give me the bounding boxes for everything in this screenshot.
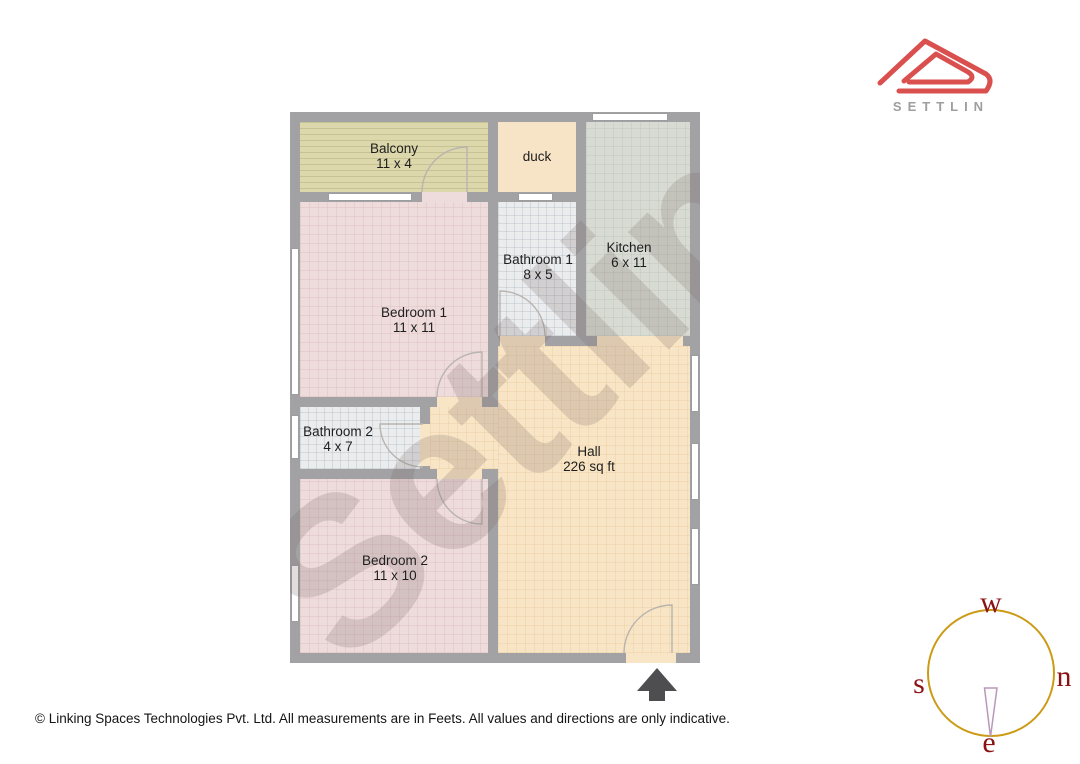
- room-dims: 226 sq ft: [509, 459, 669, 474]
- room-name: Balcony: [314, 141, 474, 156]
- room-label-hall: Hall 226 sq ft: [509, 444, 669, 474]
- room-label-bedroom1: Bedroom 1 11 x 11: [334, 305, 494, 335]
- room-label-balcony: Balcony 11 x 4: [314, 141, 474, 171]
- door-arc-bathroom1: [500, 291, 545, 336]
- door-arc-entrance: [624, 605, 672, 653]
- room-name: Bedroom 1: [334, 305, 494, 320]
- compass-label-w: w: [974, 588, 1008, 618]
- room-name: Bathroom 1: [458, 252, 618, 267]
- floorplan-page: { "logo": { "brand": "SETTLIN" }, "water…: [0, 0, 1080, 764]
- compass-label-e: e: [972, 728, 1006, 758]
- footer-copyright: © Linking Spaces Technologies Pvt. Ltd. …: [35, 711, 730, 726]
- room-dims: 11 x 4: [314, 156, 474, 171]
- compass-label-n: n: [1047, 662, 1080, 692]
- door-arc-bedroom2: [437, 479, 482, 524]
- room-name: Bathroom 2: [258, 424, 418, 439]
- room-name: Hall: [509, 444, 669, 459]
- room-dims: 8 x 5: [458, 267, 618, 282]
- room-label-bathroom1: Bathroom 1 8 x 5: [458, 252, 618, 282]
- room-name: Bedroom 2: [315, 553, 475, 568]
- compass-label-s: s: [902, 669, 936, 699]
- room-label-bathroom2: Bathroom 2 4 x 7: [258, 424, 418, 454]
- room-dims: 11 x 11: [334, 320, 494, 335]
- room-label-duct: duck: [457, 149, 617, 164]
- entrance-arrow-icon: [637, 668, 677, 701]
- brand-name: SETTLIN: [876, 99, 1006, 114]
- room-dims: 4 x 7: [258, 439, 418, 454]
- room-label-bedroom2: Bedroom 2 11 x 10: [315, 553, 475, 583]
- door-arc-bedroom1: [437, 352, 482, 397]
- room-name: duck: [457, 149, 617, 164]
- plan-overlay: [0, 0, 1080, 764]
- settlin-logo-icon: [880, 41, 990, 91]
- room-dims: 11 x 10: [315, 568, 475, 583]
